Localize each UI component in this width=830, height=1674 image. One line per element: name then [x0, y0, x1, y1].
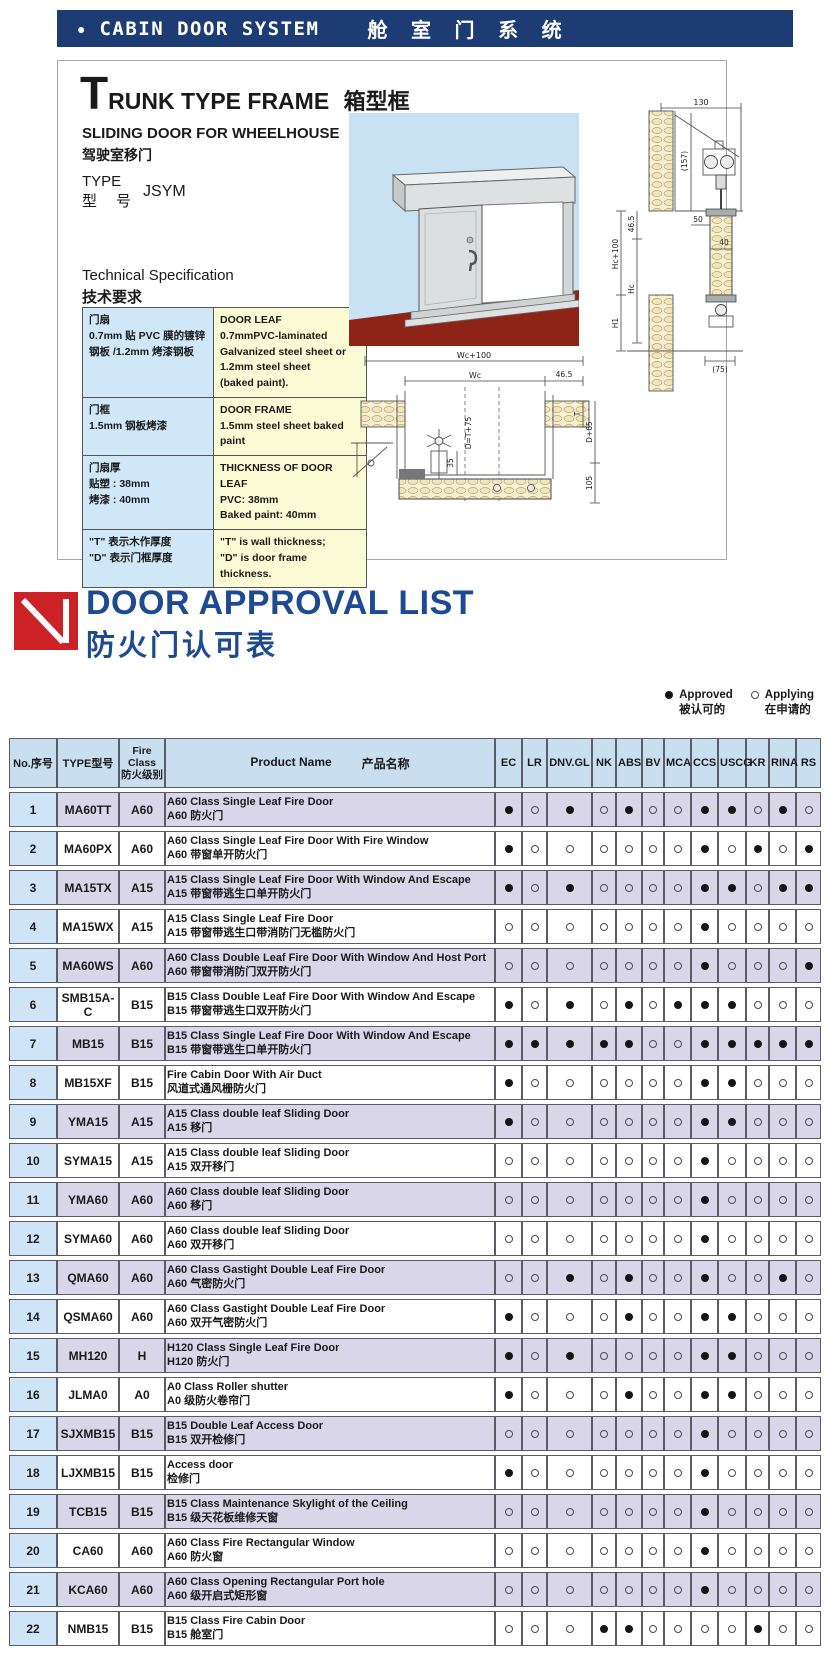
- banner-title-cn: 舱 室 门 系 统: [367, 14, 570, 43]
- mark-cell-dnvgl: [547, 909, 592, 944]
- mark-cell-rina: [769, 909, 796, 944]
- applying-dot: [505, 962, 513, 970]
- mark-cell-uscg: [718, 1416, 746, 1451]
- mark-cell-lr: [522, 1416, 547, 1451]
- row-no: 6: [9, 987, 57, 1022]
- product-name-en: A60 Class double leaf Sliding Door: [167, 1186, 493, 1199]
- row-no: 17: [9, 1416, 57, 1451]
- mark-cell-bv: [642, 1377, 664, 1412]
- approved-dot: [701, 1547, 709, 1555]
- mark-cell-nk: [592, 1026, 616, 1061]
- mark-cell-rs: [796, 1221, 821, 1256]
- applying-dot: [625, 1508, 633, 1516]
- mark-cell-mca: [664, 1416, 691, 1451]
- row-type: MB15XF: [57, 1065, 119, 1100]
- mark-cell-dnvgl: [547, 1260, 592, 1295]
- applying-dot: [754, 806, 762, 814]
- applying-dot: [805, 1157, 813, 1165]
- legend-applying-cn: 在申请的: [765, 703, 814, 718]
- approved-dot: [701, 1118, 709, 1126]
- applying-dot: [754, 1391, 762, 1399]
- mark-cell-lr: [522, 1299, 547, 1334]
- row-no: 19: [9, 1494, 57, 1529]
- approved-dot: [505, 1313, 513, 1321]
- mark-cell-dnvgl: [547, 1338, 592, 1373]
- spec-line: Baked paint: 40mm: [220, 508, 360, 524]
- applying-dot: [728, 1196, 736, 1204]
- mark-cell-lr: [522, 1533, 547, 1568]
- applying-dot: [674, 1391, 682, 1399]
- spec-line: DOOR LEAF: [220, 313, 360, 329]
- applying-dot: [754, 1118, 762, 1126]
- mark-cell-nk: [592, 1221, 616, 1256]
- mark-cell-mca: [664, 1299, 691, 1334]
- row-fire-class: A60: [119, 1260, 165, 1295]
- applying-dot: [566, 1586, 574, 1594]
- row-product-name: B15 Class Maintenance Skylight of the Ce…: [165, 1494, 495, 1529]
- mark-cell-abs: [616, 1455, 642, 1490]
- guide-block: [399, 469, 425, 479]
- applying-dot: [779, 1196, 787, 1204]
- row-no: 15: [9, 1338, 57, 1373]
- mark-cell-nk: [592, 831, 616, 866]
- approval-subtitle: 防火门认可表: [86, 622, 278, 664]
- row-fire-class: B15: [119, 1065, 165, 1100]
- spec-line: 门扇: [89, 313, 207, 329]
- row-no: 11: [9, 1182, 57, 1217]
- approval-row: 14QSMA60A60A60 Class Gastight Double Lea…: [9, 1299, 821, 1334]
- mark-cell-ec: [495, 1377, 522, 1412]
- product-name-en: A60 Class Fire Rectangular Window: [167, 1537, 493, 1550]
- mark-cell-uscg: [718, 1533, 746, 1568]
- row-fire-class: A15: [119, 1143, 165, 1178]
- row-no: 9: [9, 1104, 57, 1139]
- mark-cell-abs: [616, 1611, 642, 1646]
- product-name-cn: A60 气密防火门: [167, 1277, 493, 1291]
- mark-cell-bv: [642, 792, 664, 827]
- subtitle-en: SLIDING DOOR FOR WHEELHOUSE: [82, 125, 340, 142]
- header-product-name: Product Name 产品名称: [165, 738, 495, 788]
- approved-dot: [754, 1625, 762, 1633]
- applying-dot: [805, 1079, 813, 1087]
- door-leaf-section: [710, 215, 732, 295]
- applying-dot: [779, 1001, 787, 1009]
- applying-dot: [754, 1196, 762, 1204]
- product-name-cn: A0 级防火卷帘门: [167, 1394, 493, 1408]
- product-name-en: B15 Class Maintenance Skylight of the Ce…: [167, 1498, 493, 1511]
- mark-cell-mca: [664, 831, 691, 866]
- mark-cell-rina: [769, 792, 796, 827]
- applying-dot: [505, 1586, 513, 1594]
- spec-line: 1.5mm steel sheet baked paint: [220, 419, 360, 451]
- mark-cell-lr: [522, 870, 547, 905]
- mark-cell-mca: [664, 1221, 691, 1256]
- row-product-name: A15 Class double leaf Sliding DoorA15 移门: [165, 1104, 495, 1139]
- mark-cell-ec: [495, 1533, 522, 1568]
- dim-75: (75): [712, 365, 727, 374]
- mark-cell-bv: [642, 1143, 664, 1178]
- applying-dot: [649, 1235, 657, 1243]
- mark-cell-mca: [664, 1260, 691, 1295]
- row-product-name: A60 Class Single Leaf Fire Door With Fir…: [165, 831, 495, 866]
- mark-cell-kr: [746, 1377, 769, 1412]
- mark-cell-ccs: [691, 1065, 718, 1100]
- applying-dot: [600, 1274, 608, 1282]
- mark-cell-bv: [642, 1611, 664, 1646]
- society-header-kr: KR: [746, 738, 769, 788]
- wall-upper: [649, 111, 673, 211]
- mark-cell-lr: [522, 1494, 547, 1529]
- applying-dot: [649, 1430, 657, 1438]
- mark-cell-rina: [769, 831, 796, 866]
- mark-cell-bv: [642, 1494, 664, 1529]
- applying-dot: [779, 1508, 787, 1516]
- mark-cell-bv: [642, 1104, 664, 1139]
- mark-cell-lr: [522, 987, 547, 1022]
- mark-cell-abs: [616, 1221, 642, 1256]
- approved-dot: [566, 806, 574, 814]
- mark-cell-ec: [495, 1143, 522, 1178]
- applying-dot: [649, 1118, 657, 1126]
- product-name-en: B15 Class Single Leaf Fire Door With Win…: [167, 1030, 493, 1043]
- applying-dot: [649, 1469, 657, 1477]
- dim-35: 35: [446, 458, 455, 468]
- row-no: 21: [9, 1572, 57, 1607]
- mark-cell-dnvgl: [547, 1104, 592, 1139]
- applying-dot: [625, 1352, 633, 1360]
- approved-dot: [728, 806, 736, 814]
- header-fire-class: Fire Class 防火级别: [119, 738, 165, 788]
- approval-row: 18LJXMB15B15Access door检修门: [9, 1455, 821, 1490]
- mark-cell-uscg: [718, 1377, 746, 1412]
- row-fire-class: A60: [119, 792, 165, 827]
- mark-cell-bv: [642, 1182, 664, 1217]
- approved-dot: [728, 1040, 736, 1048]
- approval-row: 22NMB15B15B15 Class Fire Cabin DoorB15 舱…: [9, 1611, 821, 1646]
- applying-dot: [728, 1586, 736, 1594]
- mark-cell-mca: [664, 909, 691, 944]
- mark-cell-lr: [522, 1338, 547, 1373]
- roller-wheel: [705, 156, 718, 169]
- mark-cell-ccs: [691, 1494, 718, 1529]
- applying-dot: [728, 1157, 736, 1165]
- applying-dot: [779, 1430, 787, 1438]
- applying-dot: [805, 1391, 813, 1399]
- mark-cell-bv: [642, 1338, 664, 1373]
- mark-cell-abs: [616, 1143, 642, 1178]
- mark-cell-nk: [592, 1611, 616, 1646]
- applying-dot: [600, 1508, 608, 1516]
- applying-dot: [531, 1235, 539, 1243]
- mark-cell-nk: [592, 1065, 616, 1100]
- applying-dot: [728, 962, 736, 970]
- product-name-cn: A15 双开移门: [167, 1160, 493, 1174]
- mark-cell-rs: [796, 1143, 821, 1178]
- applying-dot: [625, 1118, 633, 1126]
- approval-row: 10SYMA15A15A15 Class double leaf Sliding…: [9, 1143, 821, 1178]
- product-name-cn: A60 级开启式矩形窗: [167, 1589, 493, 1603]
- dim-46-5-h: 46.5: [556, 370, 573, 379]
- mark-cell-kr: [746, 1338, 769, 1373]
- applying-dot: [600, 1196, 608, 1204]
- mark-cell-nk: [592, 1455, 616, 1490]
- row-type: TCB15: [57, 1494, 119, 1529]
- applying-dot: [625, 1586, 633, 1594]
- product-name-en: A60 Class Double Leaf Fire Door With Win…: [167, 952, 493, 965]
- society-header-ccs: CCS: [691, 738, 718, 788]
- approved-dot: [701, 1235, 709, 1243]
- product-name-cn: B15 舱室门: [167, 1628, 493, 1642]
- mark-cell-rina: [769, 1065, 796, 1100]
- approved-dot: [625, 806, 633, 814]
- approved-dot: [779, 884, 787, 892]
- row-type: MA15WX: [57, 909, 119, 944]
- mark-cell-dnvgl: [547, 1143, 592, 1178]
- spec-line: 烤漆 : 40mm: [89, 493, 207, 509]
- mark-cell-kr: [746, 1260, 769, 1295]
- mark-cell-rina: [769, 1611, 796, 1646]
- mark-cell-dnvgl: [547, 987, 592, 1022]
- mark-cell-kr: [746, 831, 769, 866]
- applying-dot: [674, 1469, 682, 1477]
- approved-dot: [625, 1313, 633, 1321]
- mark-cell-ec: [495, 1221, 522, 1256]
- approved-dot: [531, 1040, 539, 1048]
- applying-dot: [600, 1079, 608, 1087]
- mark-cell-dnvgl: [547, 870, 592, 905]
- applying-dot: [674, 1079, 682, 1087]
- row-product-name: A60 Class Single Leaf Fire DoorA60 防火门: [165, 792, 495, 827]
- mark-cell-rina: [769, 1143, 796, 1178]
- applying-dot: [805, 1508, 813, 1516]
- applying-dot: [505, 1430, 513, 1438]
- dim-105: 105: [585, 476, 594, 491]
- mark-cell-kr: [746, 1572, 769, 1607]
- mark-cell-mca: [664, 1143, 691, 1178]
- spec-line: "D" 表示门框厚度: [89, 551, 207, 567]
- applying-dot: [728, 923, 736, 931]
- row-product-name: A15 Class double leaf Sliding DoorA15 双开…: [165, 1143, 495, 1178]
- approved-dot: [505, 1391, 513, 1399]
- mark-cell-kr: [746, 1533, 769, 1568]
- approved-dot: [805, 962, 813, 970]
- mark-cell-abs: [616, 831, 642, 866]
- approval-row: 21KCA60A60A60 Class Opening Rectangular …: [9, 1572, 821, 1607]
- mark-cell-rs: [796, 1533, 821, 1568]
- row-no: 2: [9, 831, 57, 866]
- dim-46-5: 46.5: [627, 215, 636, 232]
- product-name-cn: 检修门: [167, 1472, 493, 1486]
- mark-cell-kr: [746, 1143, 769, 1178]
- mark-cell-kr: [746, 987, 769, 1022]
- bullet-icon: ●: [77, 21, 85, 37]
- applying-dot: [754, 923, 762, 931]
- applying-dot: [531, 1352, 539, 1360]
- approved-dot: [701, 1586, 709, 1594]
- applying-dot: [779, 1547, 787, 1555]
- applying-dot: [649, 1274, 657, 1282]
- mark-cell-lr: [522, 1026, 547, 1061]
- society-header-uscg: USCG: [718, 738, 746, 788]
- product-name-cn: A60 带窗带消防门双开防火门: [167, 965, 493, 979]
- approved-dot: [728, 1391, 736, 1399]
- applying-dot: [805, 1586, 813, 1594]
- mark-cell-ccs: [691, 1572, 718, 1607]
- spec-cell-cn: 门框1.5mm 钢板烤漆: [83, 397, 214, 455]
- row-type: SYMA60: [57, 1221, 119, 1256]
- mark-cell-nk: [592, 1182, 616, 1217]
- legend-applying: Applying 在申请的: [751, 688, 814, 718]
- spec-line: 门扇厚: [89, 461, 207, 477]
- approved-dot: [566, 1040, 574, 1048]
- applying-dot: [805, 1547, 813, 1555]
- approved-dot: [701, 884, 709, 892]
- mark-cell-rs: [796, 987, 821, 1022]
- mark-cell-uscg: [718, 1572, 746, 1607]
- type-value: JSYM: [143, 183, 186, 201]
- wall-right: [545, 401, 589, 427]
- type-block: TYPE 型 号 JSYM: [82, 173, 186, 211]
- applying-dot: [728, 1235, 736, 1243]
- applying-dot: [625, 1079, 633, 1087]
- approved-dot: [505, 806, 513, 814]
- header-type: TYPE型号: [57, 738, 119, 788]
- applying-dot: [505, 1196, 513, 1204]
- dim-hc100: Hc+100: [611, 239, 620, 270]
- mark-cell-abs: [616, 792, 642, 827]
- horizontal-section-drawing: Wc+100 Wc 46.5 D=T+75: [347, 351, 602, 536]
- applying-dot: [754, 1430, 762, 1438]
- mark-cell-ec: [495, 948, 522, 983]
- spec-line: DOOR FRAME: [220, 403, 360, 419]
- approval-row: 8MB15XFB15Fire Cabin Door With Air Duct风…: [9, 1065, 821, 1100]
- applying-dot: [674, 1235, 682, 1243]
- approved-dot: [805, 1040, 813, 1048]
- applying-dot: [649, 1625, 657, 1633]
- mark-cell-ccs: [691, 870, 718, 905]
- mark-cell-ec: [495, 1455, 522, 1490]
- mark-cell-bv: [642, 1026, 664, 1061]
- row-fire-class: B15: [119, 1494, 165, 1529]
- mark-cell-lr: [522, 1104, 547, 1139]
- mark-cell-mca: [664, 1338, 691, 1373]
- mark-cell-mca: [664, 792, 691, 827]
- row-type: JLMA0: [57, 1377, 119, 1412]
- applying-dot: [779, 1586, 787, 1594]
- approved-dot: [728, 1352, 736, 1360]
- approved-dot: [505, 845, 513, 853]
- legend-approved: Approved 被认可的: [665, 688, 733, 718]
- approval-row: 16JLMA0A0A0 Class Roller shutterA0 级防火卷帘…: [9, 1377, 821, 1412]
- applying-dot: [600, 845, 608, 853]
- product-name-cn: A60 双开移门: [167, 1238, 493, 1252]
- applying-dot: [649, 806, 657, 814]
- applying-dot: [779, 845, 787, 853]
- mark-cell-rs: [796, 1494, 821, 1529]
- mark-cell-uscg: [718, 1494, 746, 1529]
- applying-dot: [805, 1430, 813, 1438]
- applying-dot: [600, 1430, 608, 1438]
- product-name-cn: B15 带窗带逃生口双开防火门: [167, 1004, 493, 1018]
- applying-dot: [600, 806, 608, 814]
- mark-cell-kr: [746, 909, 769, 944]
- mark-cell-lr: [522, 1182, 547, 1217]
- mark-cell-ccs: [691, 1416, 718, 1451]
- approved-dot: [701, 1313, 709, 1321]
- applying-dot-icon: [751, 691, 759, 699]
- approved-dot: [779, 806, 787, 814]
- mark-cell-ccs: [691, 1182, 718, 1217]
- mark-cell-nk: [592, 987, 616, 1022]
- dim-wc100: Wc+100: [457, 351, 491, 360]
- approval-row: 17SJXMB15B15B15 Double Leaf Access DoorB…: [9, 1416, 821, 1451]
- applying-dot: [531, 1274, 539, 1282]
- mark-cell-dnvgl: [547, 948, 592, 983]
- applying-dot: [649, 884, 657, 892]
- row-no: 10: [9, 1143, 57, 1178]
- mark-cell-uscg: [718, 909, 746, 944]
- applying-dot: [566, 1508, 574, 1516]
- spec-line: 钢板 /1.2mm 烤漆钢板: [89, 345, 207, 361]
- row-fire-class: A60: [119, 1299, 165, 1334]
- applying-dot: [754, 1469, 762, 1477]
- spec-table-body: 门扇0.7mm 贴 PVC 膜的镀锌钢板 /1.2mm 烤漆钢板DOOR LEA…: [83, 308, 367, 588]
- applying-dot: [779, 962, 787, 970]
- title-dropcap: T: [80, 67, 108, 119]
- banner-title-en: CABIN DOOR SYSTEM: [99, 18, 319, 40]
- applying-dot: [531, 1547, 539, 1555]
- wall-lower: [649, 295, 673, 391]
- applying-dot: [674, 1352, 682, 1360]
- trunk-frame-panel: TRUNK TYPE FRAME 箱型框 SLIDING DOOR FOR WH…: [57, 60, 727, 560]
- applying-dot: [531, 1079, 539, 1087]
- mark-cell-kr: [746, 870, 769, 905]
- mark-cell-mca: [664, 948, 691, 983]
- mark-cell-ccs: [691, 831, 718, 866]
- mark-cell-mca: [664, 1611, 691, 1646]
- spec-cell-en: "T" is wall thickness;"D" is door frame …: [214, 530, 367, 588]
- row-type: SJXMB15: [57, 1416, 119, 1451]
- mark-cell-dnvgl: [547, 1416, 592, 1451]
- mark-cell-ec: [495, 1494, 522, 1529]
- row-product-name: Access door检修门: [165, 1455, 495, 1490]
- mark-cell-dnvgl: [547, 1065, 592, 1100]
- applying-dot: [805, 1235, 813, 1243]
- mark-cell-rina: [769, 1182, 796, 1217]
- mark-cell-lr: [522, 1611, 547, 1646]
- mark-cell-ccs: [691, 1338, 718, 1373]
- mark-cell-bv: [642, 1416, 664, 1451]
- row-product-name: A15 Class Single Leaf Fire Door With Win…: [165, 870, 495, 905]
- door-illustration: [349, 113, 579, 346]
- applying-dot: [566, 1469, 574, 1477]
- type-label-en: TYPE: [82, 173, 133, 190]
- row-product-name: A60 Class double leaf Sliding DoorA60 移门: [165, 1182, 495, 1217]
- mark-cell-abs: [616, 1494, 642, 1529]
- mark-cell-mca: [664, 1182, 691, 1217]
- mark-cell-kr: [746, 1065, 769, 1100]
- row-type: MB15: [57, 1026, 119, 1061]
- mark-cell-mca: [664, 1104, 691, 1139]
- applying-dot: [779, 1625, 787, 1633]
- product-name-cn: H120 防火门: [167, 1355, 493, 1369]
- mark-cell-dnvgl: [547, 1611, 592, 1646]
- page-banner: ● CABIN DOOR SYSTEM 舱 室 门 系 统: [57, 10, 793, 47]
- mark-cell-nk: [592, 1494, 616, 1529]
- society-header-ec: EC: [495, 738, 522, 788]
- row-type: LJXMB15: [57, 1455, 119, 1490]
- approval-row: 1MA60TTA60A60 Class Single Leaf Fire Doo…: [9, 792, 821, 827]
